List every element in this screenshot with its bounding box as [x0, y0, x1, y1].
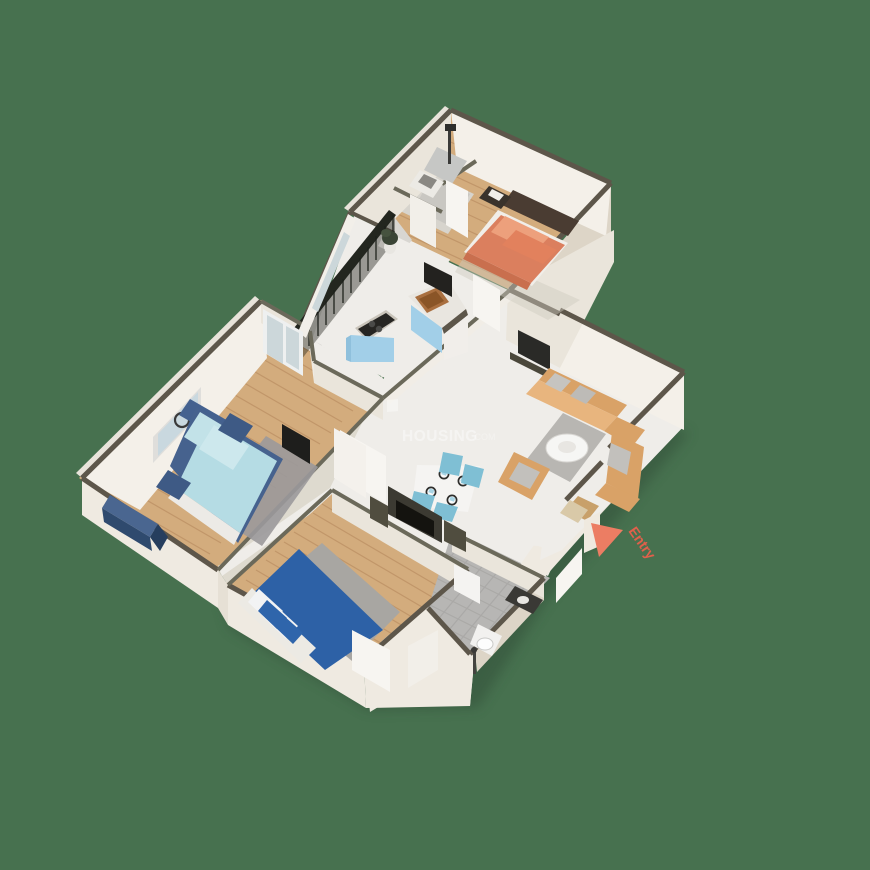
- svg-text:.COM: .COM: [472, 432, 496, 442]
- svg-text:HOUSING: HOUSING: [402, 428, 478, 445]
